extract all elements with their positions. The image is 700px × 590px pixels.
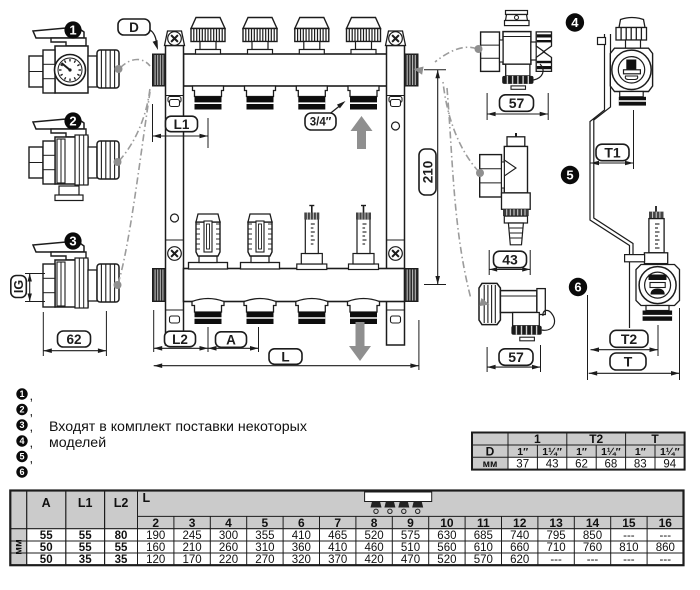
svg-text:120: 120	[146, 554, 165, 566]
svg-text:L2: L2	[172, 332, 188, 347]
svg-text:660: 660	[510, 542, 529, 554]
svg-text:1¼″: 1¼″	[542, 446, 562, 458]
svg-text:370: 370	[328, 554, 347, 566]
svg-text:520: 520	[365, 530, 384, 542]
svg-text:L1: L1	[174, 117, 190, 132]
svg-text:A: A	[42, 496, 51, 510]
svg-text:3: 3	[189, 516, 196, 530]
svg-text:12: 12	[513, 516, 527, 530]
svg-text:685: 685	[474, 530, 493, 542]
svg-text:L2: L2	[114, 496, 129, 510]
svg-text:,: ,	[30, 451, 34, 466]
svg-text:---: ---	[623, 554, 635, 566]
svg-text:220: 220	[219, 554, 238, 566]
svg-text:8: 8	[371, 516, 378, 530]
svg-text:50: 50	[40, 554, 53, 566]
svg-text:D: D	[129, 20, 139, 35]
svg-text:L1: L1	[78, 496, 93, 510]
svg-text:310: 310	[255, 542, 274, 554]
svg-text:5: 5	[262, 516, 269, 530]
svg-text:94: 94	[663, 459, 676, 471]
svg-text:795: 795	[547, 530, 566, 542]
svg-text:410: 410	[328, 542, 347, 554]
svg-text:55: 55	[79, 542, 92, 554]
svg-text:160: 160	[146, 542, 165, 554]
svg-text:3: 3	[69, 234, 76, 249]
svg-text:6: 6	[574, 280, 581, 295]
svg-text:1″: 1″	[517, 446, 528, 458]
svg-text:L: L	[143, 491, 151, 505]
svg-text:300: 300	[219, 530, 238, 542]
svg-text:35: 35	[79, 554, 92, 566]
svg-text:,: ,	[30, 435, 34, 450]
svg-text:16: 16	[659, 516, 673, 530]
svg-text:мм: мм	[483, 459, 498, 470]
svg-text:410: 410	[292, 530, 311, 542]
svg-text:,: ,	[30, 419, 34, 434]
svg-text:10: 10	[440, 516, 454, 530]
svg-text:2: 2	[152, 516, 159, 530]
svg-text:740: 740	[510, 530, 529, 542]
svg-text:---: ---	[660, 554, 672, 566]
svg-text:T1: T1	[604, 145, 621, 161]
svg-text:57: 57	[509, 95, 525, 111]
svg-text:465: 465	[328, 530, 347, 542]
svg-text:520: 520	[437, 554, 456, 566]
svg-text:55: 55	[40, 530, 53, 542]
svg-text:1″: 1″	[635, 446, 646, 458]
svg-text:80: 80	[115, 530, 128, 542]
svg-text:15: 15	[622, 516, 636, 530]
svg-text:68: 68	[605, 459, 618, 471]
svg-text:13: 13	[549, 516, 563, 530]
svg-text:,: ,	[30, 404, 34, 419]
svg-text:2: 2	[69, 114, 76, 129]
svg-text:моделей: моделей	[49, 435, 106, 451]
svg-text:245: 245	[183, 530, 202, 542]
svg-text:14: 14	[586, 516, 600, 530]
svg-text:мм: мм	[13, 539, 25, 555]
svg-text:5: 5	[566, 168, 573, 183]
svg-text:320: 320	[292, 554, 311, 566]
svg-text:43: 43	[546, 459, 559, 471]
svg-text:T: T	[651, 432, 659, 446]
svg-text:4: 4	[571, 15, 579, 30]
svg-text:3/4″: 3/4″	[310, 117, 332, 129]
svg-text:T2: T2	[621, 331, 638, 347]
svg-text:510: 510	[401, 542, 420, 554]
svg-text:57: 57	[508, 349, 524, 365]
svg-text:1: 1	[534, 432, 541, 446]
svg-text:210: 210	[183, 542, 202, 554]
svg-text:Входят в комплект поставки нек: Входят в комплект поставки некоторых	[49, 419, 307, 435]
svg-text:260: 260	[219, 542, 238, 554]
svg-text:7: 7	[334, 516, 341, 530]
svg-text:---: ---	[660, 530, 672, 542]
svg-text:62: 62	[575, 459, 588, 471]
svg-text:570: 570	[474, 554, 493, 566]
svg-text:6: 6	[298, 516, 305, 530]
svg-text:575: 575	[401, 530, 420, 542]
svg-text:560: 560	[437, 542, 456, 554]
svg-text:---: ---	[550, 554, 562, 566]
svg-text:630: 630	[437, 530, 456, 542]
svg-text:L: L	[281, 349, 289, 364]
svg-text:5: 5	[19, 452, 24, 462]
svg-text:11: 11	[477, 516, 490, 530]
svg-text:83: 83	[634, 459, 647, 471]
svg-text:1¼″: 1¼″	[601, 446, 621, 458]
svg-text:850: 850	[583, 530, 602, 542]
svg-text:,: ,	[30, 388, 34, 403]
svg-text:IG: IG	[12, 280, 26, 293]
svg-text:43: 43	[502, 252, 518, 268]
svg-text:62: 62	[66, 332, 81, 347]
svg-text:9: 9	[407, 516, 414, 530]
svg-text:55: 55	[115, 542, 128, 554]
svg-text:T: T	[624, 354, 633, 370]
svg-text:355: 355	[255, 530, 274, 542]
svg-text:1: 1	[69, 23, 76, 38]
svg-text:4: 4	[225, 516, 232, 530]
svg-text:55: 55	[79, 530, 92, 542]
svg-text:170: 170	[183, 554, 202, 566]
svg-text:860: 860	[656, 542, 675, 554]
svg-text:6: 6	[19, 467, 24, 477]
svg-text:A: A	[226, 332, 236, 347]
svg-text:50: 50	[40, 542, 53, 554]
svg-text:35: 35	[115, 554, 128, 566]
svg-text:190: 190	[146, 530, 165, 542]
svg-text:810: 810	[619, 542, 638, 554]
svg-text:3: 3	[19, 420, 24, 430]
svg-text:D: D	[486, 445, 495, 459]
svg-text:420: 420	[365, 554, 384, 566]
svg-text:1: 1	[19, 389, 24, 399]
svg-text:---: ---	[623, 530, 635, 542]
svg-text:760: 760	[583, 542, 602, 554]
svg-text:610: 610	[474, 542, 493, 554]
svg-text:360: 360	[292, 542, 311, 554]
svg-text:460: 460	[365, 542, 384, 554]
svg-text:210: 210	[420, 161, 435, 184]
svg-text:4: 4	[19, 436, 24, 446]
svg-text:T2: T2	[589, 432, 603, 446]
svg-text:---: ---	[587, 554, 599, 566]
svg-text:2: 2	[19, 405, 24, 415]
svg-text:37: 37	[516, 459, 529, 471]
svg-text:1″: 1″	[576, 446, 587, 458]
svg-text:1¼″: 1¼″	[660, 446, 680, 458]
svg-text:470: 470	[401, 554, 420, 566]
svg-text:620: 620	[510, 554, 529, 566]
svg-text:710: 710	[547, 542, 566, 554]
svg-text:270: 270	[255, 554, 274, 566]
